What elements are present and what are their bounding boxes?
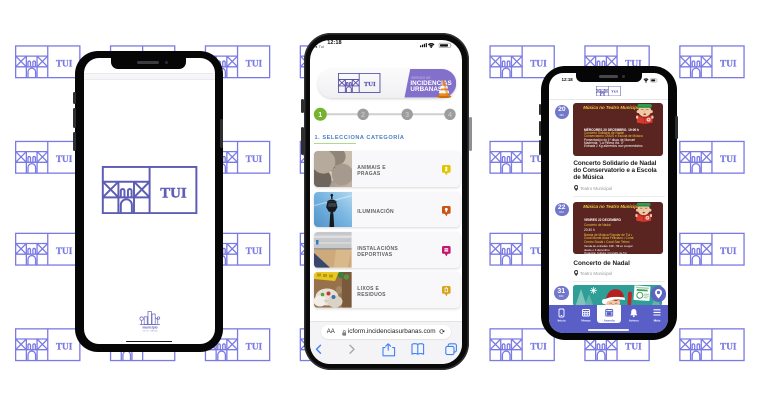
svg-text:2: 2 xyxy=(361,111,365,118)
svg-text:1: 1 xyxy=(319,109,323,118)
svg-text:Máis: Máis xyxy=(653,318,660,322)
svg-text:URBANAS: URBANAS xyxy=(411,86,443,93)
svg-text:Inicio: Inicio xyxy=(557,318,565,322)
svg-text:DE TUI · GALICIA: DE TUI · GALICIA xyxy=(143,329,158,332)
svg-text:municipio: municipio xyxy=(142,326,157,330)
svg-text:3: 3 xyxy=(406,111,410,118)
svg-text:4: 4 xyxy=(448,111,452,118)
svg-text:Axenda: Axenda xyxy=(603,318,614,322)
svg-text:Avisos: Avisos xyxy=(628,318,638,322)
svg-text:Novas: Novas xyxy=(581,318,591,322)
